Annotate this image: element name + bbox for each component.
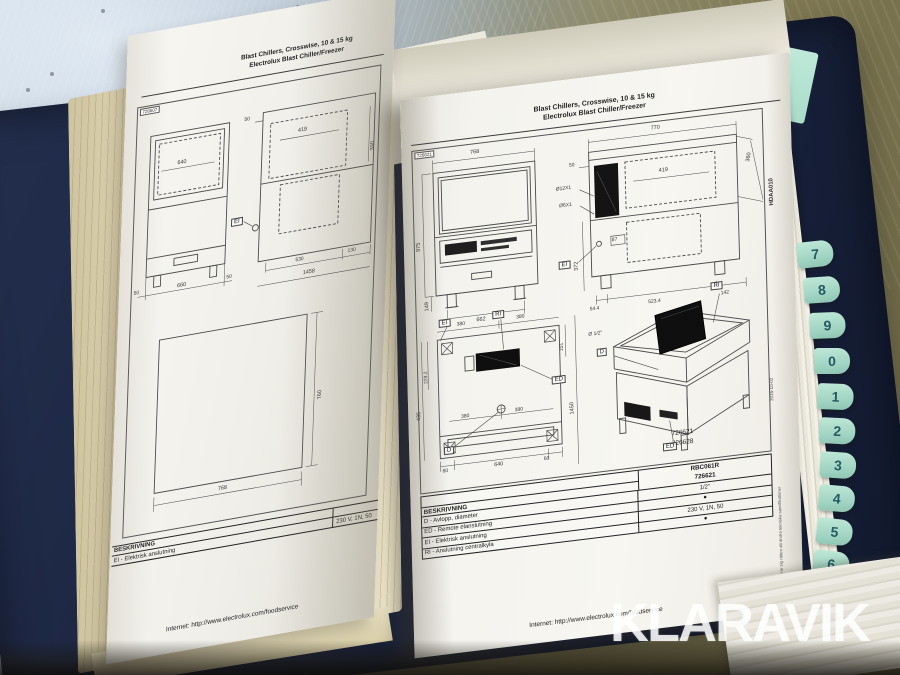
dim-label: D	[444, 446, 454, 455]
dim-label: 523.4	[648, 298, 661, 306]
dim-label: 50	[244, 116, 250, 123]
doc-date-vertical: 2015-10-02	[769, 377, 775, 401]
dim-label: 50	[134, 290, 140, 297]
dim-label: 380	[516, 313, 524, 320]
dim-label: 530	[295, 256, 303, 264]
dim-label: 1458	[303, 268, 315, 276]
footer-url-left: Internet: http://www.electrolux.com/food…	[166, 603, 299, 633]
dim-label: 662	[476, 316, 485, 323]
dim-label: 390	[370, 140, 376, 150]
dim-label: EI	[439, 319, 451, 328]
dim-label: RI	[710, 281, 722, 290]
dim-label: ED	[552, 375, 566, 385]
spot-weld-dot	[101, 9, 105, 13]
model-numbers: 726621 726628	[671, 427, 693, 449]
left-page: Blast Chillers, Crosswise, 10 & 15 kg El…	[106, 0, 396, 664]
dim-label: 50	[569, 162, 575, 169]
drawing-frame-right: 726621	[411, 108, 771, 495]
dim-label: 54.4	[590, 305, 600, 312]
dim-label: 975	[416, 242, 422, 252]
dim-label: 360	[745, 152, 753, 162]
dim-label: 60	[544, 455, 550, 462]
dim-label: 372	[574, 261, 580, 271]
dim-label: 660	[177, 282, 186, 290]
dim-label: Ø6X1	[559, 202, 572, 210]
dim-label: D	[597, 348, 607, 357]
dim-label: 419	[659, 167, 668, 174]
watermark: KLARAVIK	[610, 592, 869, 654]
dim-label: 229.2	[423, 371, 429, 384]
dim-label: 380	[457, 321, 465, 328]
dim-label: 50	[226, 274, 232, 281]
dim-label: 768	[218, 485, 227, 493]
drawing-frame-left: 726607	[122, 64, 381, 538]
dim-label: 640	[177, 159, 186, 167]
dim-label: 87	[612, 237, 618, 244]
dim-label: EI	[559, 260, 571, 269]
photo-scene: Blast Chillers, Crosswise, 10 & 15 kg El…	[0, 0, 900, 675]
dim-label: EI	[231, 217, 243, 227]
dim-label: 640	[494, 461, 503, 468]
dim-label: 130	[347, 247, 355, 255]
dim-label: 768	[470, 149, 479, 156]
dim-label: 1450	[569, 402, 575, 415]
dim-label: 380	[515, 406, 523, 413]
dim-label: 142	[721, 289, 729, 296]
spot-weld-dot	[50, 72, 54, 76]
dim-label: Ø12X1	[556, 185, 572, 193]
doc-code-vertical: HDAA010	[768, 178, 775, 206]
dim-label: 60	[443, 468, 449, 475]
dim-label: 435	[416, 411, 422, 421]
dim-label: Ø 1/2"	[588, 330, 602, 338]
dim-label: 380	[461, 413, 469, 420]
dim-label: 770	[651, 125, 660, 132]
left-drawing-dimension-labels: 640660505050419390EI5301301458768760	[123, 66, 380, 538]
spot-weld-dot	[26, 88, 30, 92]
right-page: Blast Chillers, Crosswise, 10 & 15 kg El…	[400, 52, 804, 658]
dim-label: 419	[298, 126, 307, 134]
dim-label: 149	[424, 302, 430, 312]
right-drawing-dimension-labels: 76897514966277050419360Ø12X1Ø6X187372EI5…	[412, 109, 770, 493]
dim-label: RI	[492, 310, 504, 319]
dim-label: 151	[559, 342, 565, 351]
dim-label: 760	[317, 389, 323, 399]
